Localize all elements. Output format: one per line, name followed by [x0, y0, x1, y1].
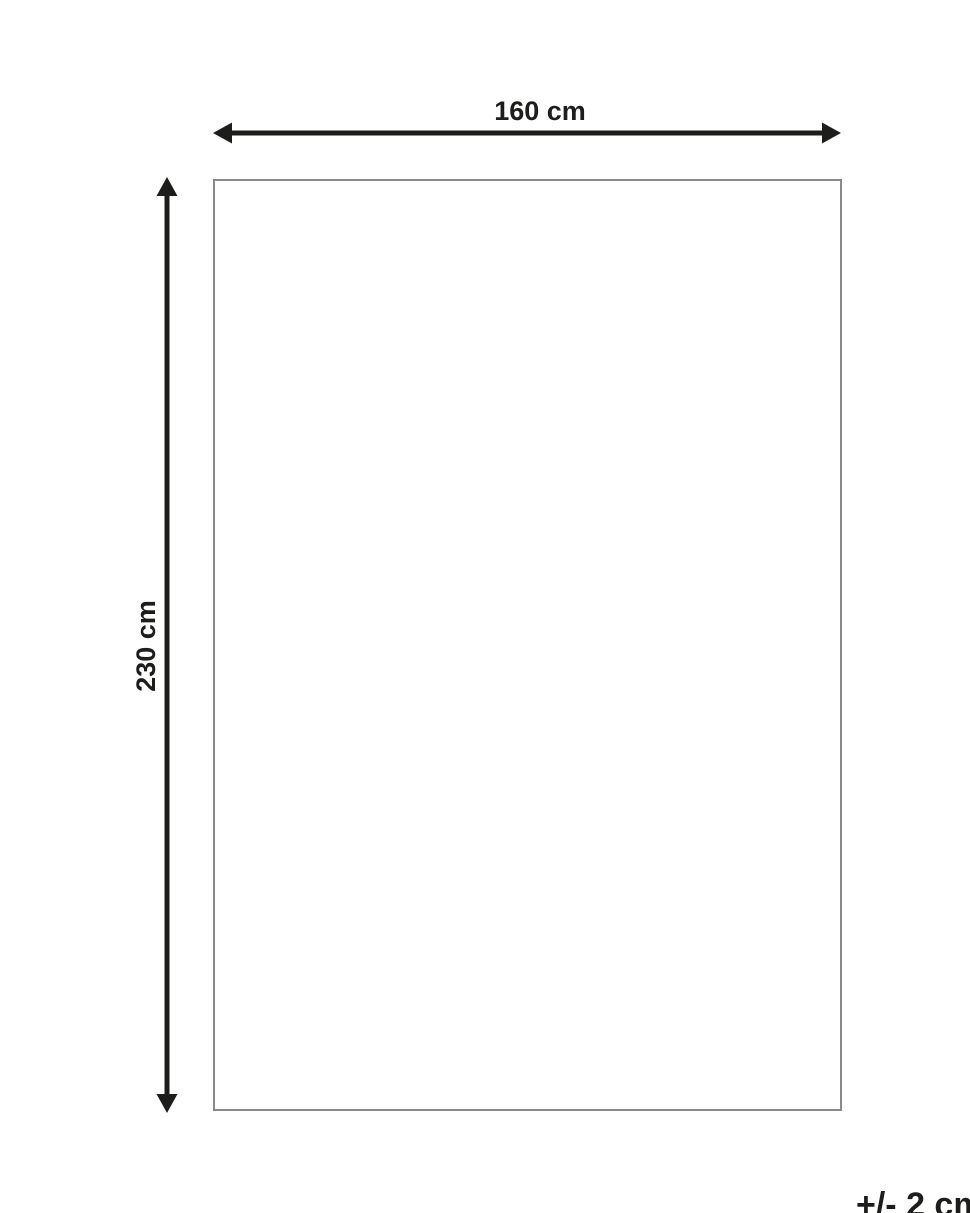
- dimension-diagram: 160 cm 230 cm +/- 2 cm: [0, 0, 970, 1213]
- height-dimension-label: 230 cm: [133, 546, 161, 746]
- tolerance-label: +/- 2 cm: [856, 1188, 970, 1213]
- arrow-right-head: [822, 123, 841, 144]
- arrow-left-head: [213, 123, 232, 144]
- arrow-up-head: [157, 177, 178, 196]
- width-dimension-label: 160 cm: [440, 98, 640, 125]
- arrow-down-head: [157, 1094, 178, 1113]
